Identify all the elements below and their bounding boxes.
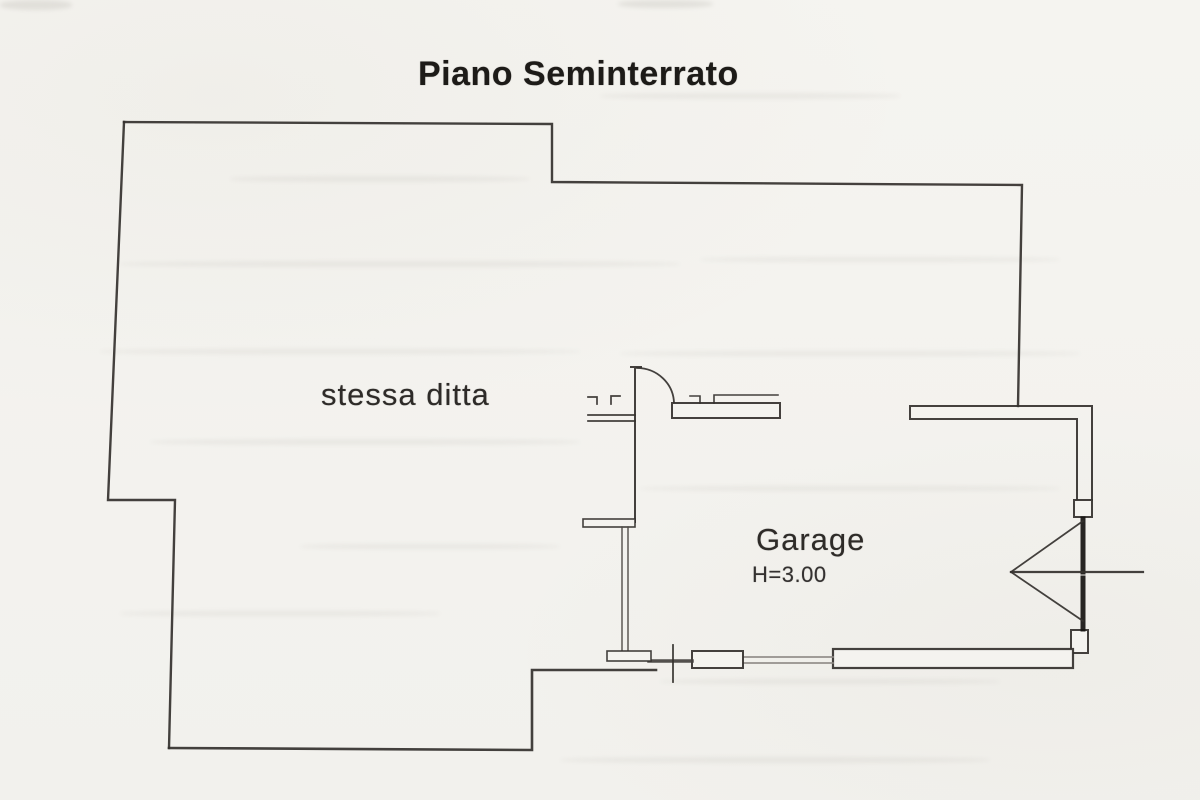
garage-door-jamb-top <box>1074 500 1092 517</box>
garage-bottom-wall-long <box>833 649 1073 668</box>
partition-double-line <box>622 527 628 652</box>
room-label-garage: Garage <box>756 522 865 558</box>
garage-top-wall <box>910 406 1092 500</box>
garage-bottom-window <box>743 657 833 663</box>
outer-wall-left <box>108 122 175 748</box>
door-swing-arc <box>637 368 674 403</box>
floorplan-drawing <box>0 0 1200 800</box>
window-ticks-right <box>690 395 778 403</box>
partition-top-tick <box>583 519 635 527</box>
window-wall-right <box>672 403 780 418</box>
partition-bottom-tick <box>607 651 651 661</box>
floorplan-page: Piano Seminterrato stessa ditta Garage H… <box>0 0 1200 800</box>
outer-wall-top <box>124 122 1022 406</box>
garage-height-annotation: H=3.00 <box>752 562 827 588</box>
plan-title: Piano Seminterrato <box>418 55 782 94</box>
garage-bottom-wall-short <box>692 651 743 668</box>
room-label-stessa-ditta: stessa ditta <box>321 377 490 413</box>
outer-wall-bottom <box>169 670 656 750</box>
door-leaf <box>631 367 641 522</box>
window-wall-left <box>588 396 635 421</box>
